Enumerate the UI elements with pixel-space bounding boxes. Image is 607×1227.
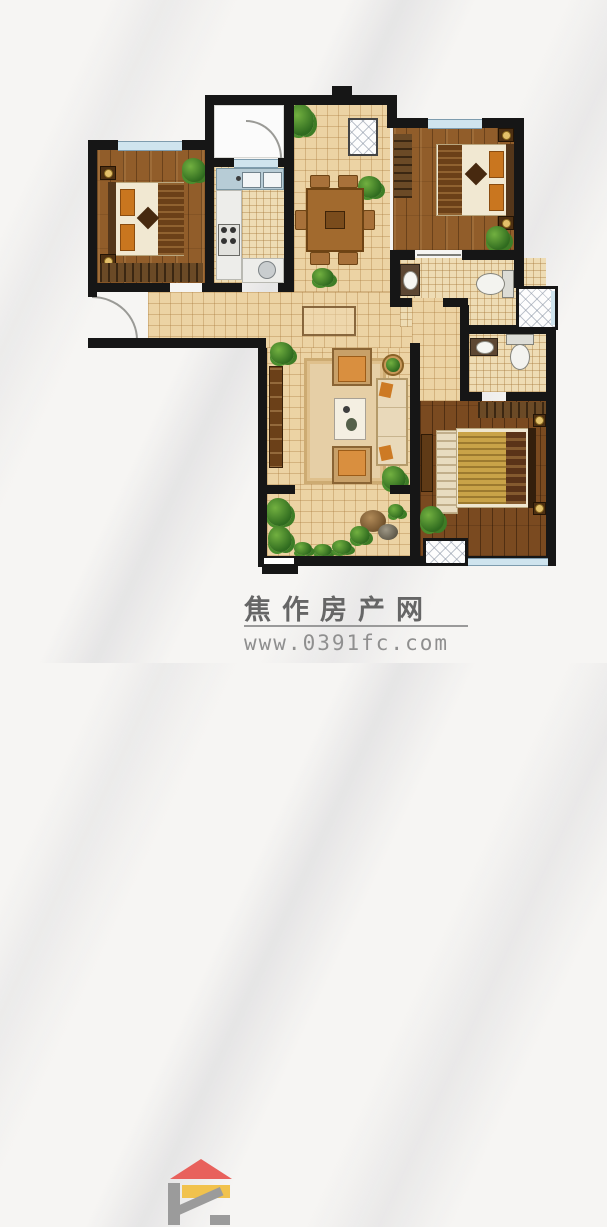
headboard: [108, 182, 116, 256]
burner-icon: [221, 227, 227, 233]
nightstand: [533, 502, 546, 515]
headboard: [506, 144, 514, 216]
wall: [278, 158, 284, 167]
wall: [284, 95, 294, 292]
toilet-icon: [510, 344, 530, 370]
wall: [258, 348, 267, 567]
page: { "watermark": { "site_name": "焦作房产网", "…: [0, 0, 607, 663]
logo-foot-bar: [210, 1215, 230, 1225]
nightstand: [533, 414, 546, 427]
ensuite-sink-counter: [470, 338, 498, 356]
plant-icon: [182, 158, 206, 182]
armchair: [332, 446, 372, 484]
wall: [88, 140, 97, 297]
toilet-icon: [476, 273, 505, 295]
wall: [460, 392, 482, 401]
headboard: [528, 428, 536, 508]
dining-chair: [310, 252, 330, 265]
sofa: [376, 378, 408, 466]
lamp-icon: [502, 131, 511, 140]
centerpiece: [325, 211, 345, 229]
bathroom-bay-window: [516, 286, 558, 330]
plant-icon: [486, 226, 510, 250]
left-bedroom-wardrobe: [100, 263, 203, 282]
vent-icon: [258, 261, 276, 279]
sink-basin: [476, 341, 494, 354]
window: [118, 141, 182, 151]
stove: [218, 224, 240, 256]
window: [428, 119, 482, 129]
master-bed: [456, 428, 536, 508]
pillow: [120, 189, 135, 216]
site-url: www.0391fc.com: [244, 631, 449, 655]
wall: [88, 338, 266, 348]
dining-chair: [338, 175, 358, 188]
lamp-icon: [535, 504, 544, 513]
master-rug: [436, 430, 458, 514]
wall: [506, 392, 554, 401]
wall: [278, 283, 294, 292]
right-bedroom-wardrobe: [394, 134, 412, 198]
kitchen-sink-counter: [216, 168, 284, 190]
plant-icon: [266, 498, 292, 526]
armchair: [332, 348, 372, 386]
plant-icon: [270, 342, 294, 364]
logo-left-bar: [168, 1183, 180, 1225]
plant-icon: [312, 268, 334, 286]
side-table: [382, 354, 404, 376]
blanket: [438, 145, 462, 215]
lamp-icon: [535, 416, 544, 425]
decor-icon: [346, 418, 357, 431]
burner-icon: [230, 227, 236, 233]
rock-icon: [378, 524, 398, 540]
wall-stub: [262, 566, 298, 574]
coffee-table: [334, 398, 366, 440]
sink-basin: [242, 172, 261, 188]
wall: [462, 250, 514, 260]
wall: [214, 158, 234, 167]
window: [468, 558, 548, 566]
wall: [182, 140, 205, 150]
logo-roof: [170, 1159, 232, 1179]
plant-icon: [420, 506, 444, 532]
master-dresser: [421, 434, 433, 492]
site-name: 焦作房产网: [244, 588, 434, 627]
plant-icon: [294, 542, 312, 555]
wall: [546, 328, 556, 370]
dining-chair: [363, 210, 375, 230]
entry-door-arc: [92, 296, 138, 340]
plant-icon: [332, 540, 352, 554]
sink-basin: [263, 172, 282, 188]
logo-divider: [244, 625, 468, 627]
dining-table: [306, 188, 364, 252]
pillow: [489, 151, 504, 178]
duvet: [458, 432, 506, 504]
rock-garden: [350, 502, 408, 550]
master-bay-window: [423, 538, 468, 566]
wall: [205, 95, 214, 292]
nightstand: [100, 166, 116, 180]
wall: [514, 258, 524, 288]
balcony-opening: [264, 558, 294, 564]
throw-pillow: [465, 163, 488, 186]
wall: [390, 118, 428, 128]
entry-doormat: [302, 306, 356, 336]
dining-chair: [310, 175, 330, 188]
right-bedroom-bed: [436, 144, 514, 216]
wall: [88, 283, 170, 292]
floor-plan: [0, 0, 607, 607]
bathroom-sink-counter: [400, 264, 420, 296]
bedroom-door-leaf: [417, 254, 461, 256]
water-heater: [348, 118, 378, 156]
wall: [390, 485, 412, 494]
wall: [202, 283, 215, 292]
pillow: [120, 224, 135, 251]
pillow-zone: [506, 432, 526, 504]
tv-cabinet: [269, 366, 283, 468]
window: [551, 291, 555, 325]
faucet-icon: [236, 176, 241, 181]
wall: [205, 95, 397, 105]
sofa-pillow: [379, 445, 394, 461]
seat-cushion: [338, 356, 366, 382]
seat-cushion: [338, 450, 366, 476]
wall: [460, 305, 469, 395]
pillow: [489, 184, 504, 211]
decor-icon: [343, 406, 350, 413]
plant-icon: [386, 358, 400, 372]
lamp-icon: [104, 169, 113, 178]
plant-icon: [268, 526, 292, 552]
sink-basin: [403, 271, 418, 290]
plant-icon: [314, 544, 332, 556]
plant-icon: [350, 526, 370, 544]
wall: [215, 283, 242, 292]
burner-icon: [230, 238, 236, 244]
burner-icon: [221, 238, 227, 244]
wall: [258, 485, 295, 494]
site-logo-icon: [168, 1159, 234, 1227]
window: [234, 159, 278, 168]
throw-pillow: [137, 207, 160, 230]
dining-chair: [338, 252, 358, 265]
plant-icon: [388, 504, 404, 518]
nightstand: [498, 128, 514, 142]
blanket: [158, 183, 184, 255]
wall: [410, 343, 420, 566]
watermark: 焦作房产网 www.0391fc.com: [0, 575, 607, 663]
wall-stub: [332, 86, 352, 96]
left-bedroom-bed: [108, 182, 184, 256]
sofa-pillow: [379, 382, 394, 398]
wall: [514, 118, 524, 268]
wall: [390, 298, 412, 307]
